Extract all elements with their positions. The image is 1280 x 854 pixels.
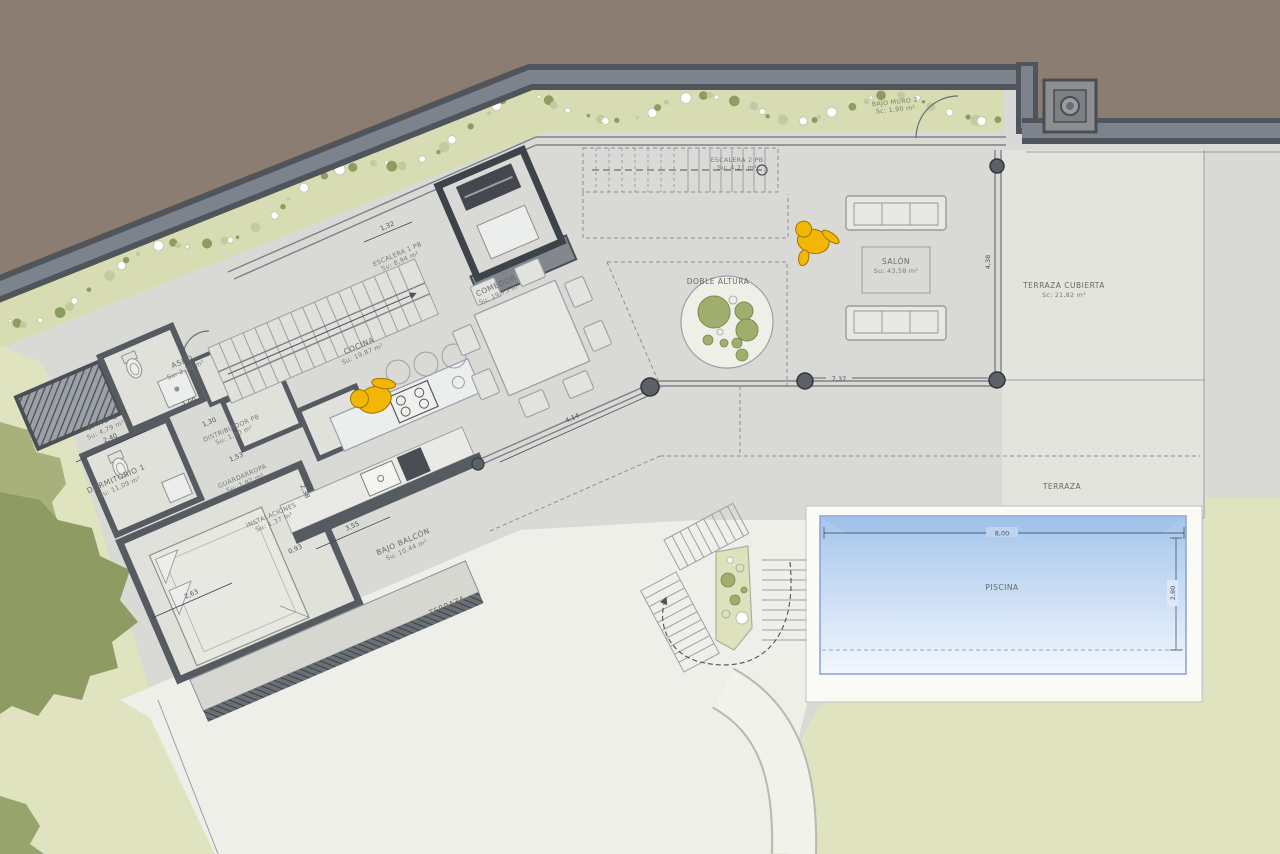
- dim-text: 4,38: [984, 255, 992, 269]
- dim-pool-height: 2,80: [1169, 586, 1177, 600]
- column: [641, 378, 659, 396]
- svg-text:SALÓN: SALÓN: [882, 257, 910, 266]
- column: [990, 159, 1004, 173]
- sofa: [846, 196, 946, 230]
- svg-text:Su: 43,58 m²: Su: 43,58 m²: [874, 268, 919, 275]
- floor-plan-canvas: 8,00 2,80 BAÑO 1Su: 4,79 m² ASEOSu:: [0, 0, 1280, 854]
- label-doble-altura: DOBLE ALTURA: [687, 277, 750, 286]
- svg-text:DOBLE ALTURA: DOBLE ALTURA: [687, 277, 750, 286]
- svg-text:ESCALERA 2 PB: ESCALERA 2 PB: [711, 157, 764, 164]
- sofa: [846, 306, 946, 340]
- chimney: [1044, 80, 1096, 132]
- floor-plan-svg: 8,00 2,80 BAÑO 1Su: 4,79 m² ASEOSu:: [0, 0, 1280, 854]
- label-terraza-este: TERRAZA: [1042, 482, 1082, 491]
- interior-planter: [681, 276, 773, 368]
- grass-east-strip: [1205, 498, 1280, 694]
- dim-pool-width: 8,00: [995, 530, 1009, 538]
- label-escalera2: ESCALERA 2 PBSu: 4,21 m²: [711, 157, 764, 172]
- label-piscina: PISCINA: [985, 583, 1019, 592]
- grass-southeast: [770, 692, 1280, 854]
- exterior-planter: [716, 546, 752, 650]
- terrace-covered-floor: [1002, 150, 1204, 518]
- svg-text:PISCINA: PISCINA: [985, 583, 1019, 592]
- svg-text:Su: 4,21 m²: Su: 4,21 m²: [717, 165, 757, 172]
- dim-text: 7,37: [832, 375, 846, 383]
- svg-text:Sc: 21,82 m²: Sc: 21,82 m²: [1042, 292, 1086, 299]
- column: [989, 372, 1005, 388]
- svg-text:TERRAZA: TERRAZA: [1042, 482, 1082, 491]
- column: [472, 458, 484, 470]
- svg-text:TERRAZA CUBIERTA: TERRAZA CUBIERTA: [1022, 281, 1105, 290]
- column: [797, 373, 813, 389]
